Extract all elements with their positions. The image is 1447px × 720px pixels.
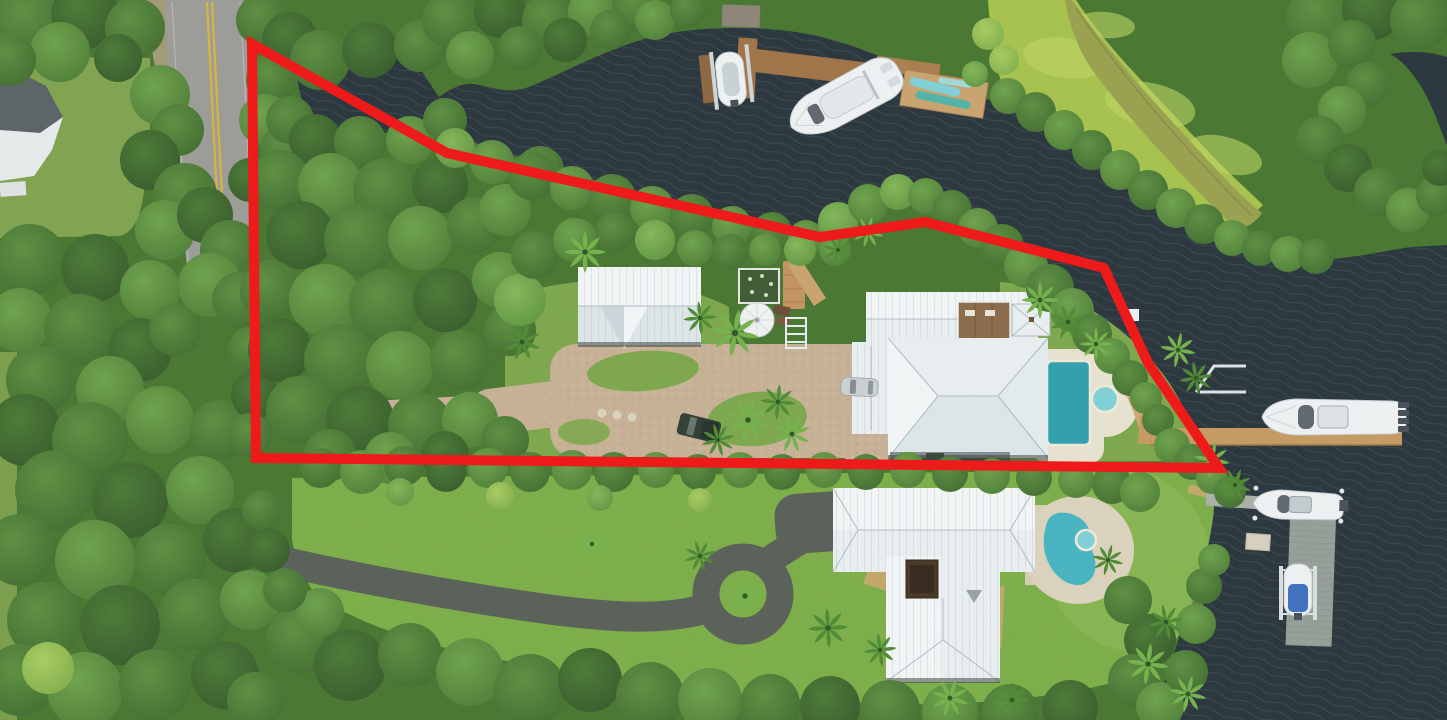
aerial-photo-canvas (0, 0, 1447, 720)
photo-grain-overlay (0, 0, 1447, 720)
aerial-photo (0, 0, 1447, 720)
